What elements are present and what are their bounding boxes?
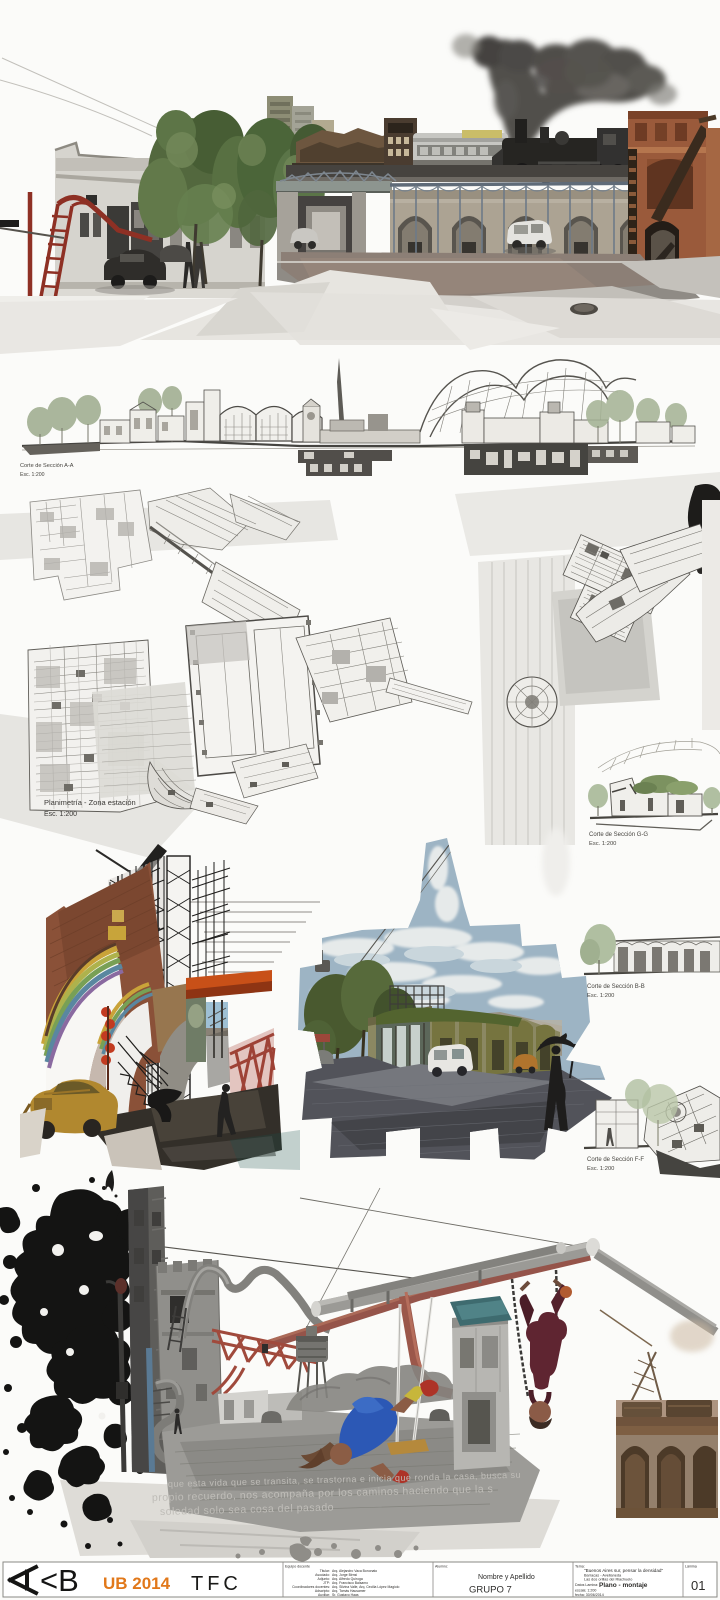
svg-text:Planimetría - Zona estación: Planimetría - Zona estación: [44, 798, 136, 807]
svg-text:Datos Lamina:: Datos Lamina:: [575, 1583, 598, 1587]
svg-text:Lámina: Lámina: [685, 1565, 697, 1569]
svg-text:Sr. Gustavo Haas: Sr. Gustavo Haas: [332, 1593, 359, 1597]
svg-text:Esc. 1:200: Esc. 1:200: [587, 993, 614, 999]
svg-text:Nombre y Apellido: Nombre y Apellido: [478, 1574, 535, 1581]
svg-text:Corte de Sección F-F: Corte de Sección F-F: [587, 1157, 644, 1163]
svg-text:Esc. 1:200: Esc. 1:200: [587, 1166, 614, 1172]
svg-text:Las dos orillas del Riachuelo: Las dos orillas del Riachuelo: [584, 1578, 632, 1582]
svg-text:Esc. 1:200: Esc. 1:200: [589, 841, 616, 847]
svg-text:01: 01: [691, 1578, 705, 1593]
svg-text:Alumno:: Alumno:: [435, 1565, 448, 1569]
svg-text:Corte de Sección G-G: Corte de Sección G-G: [589, 832, 648, 838]
svg-text:Auxiliar:: Auxiliar:: [318, 1593, 330, 1597]
svg-text:escala: 1:200: escala: 1:200: [575, 1589, 596, 1593]
svg-text:Esc. 1:200: Esc. 1:200: [44, 811, 77, 818]
svg-text:Esc. 1:200: Esc. 1:200: [20, 472, 45, 478]
svg-text:Plano - montaje: Plano - montaje: [599, 1582, 648, 1589]
svg-text:Corte de Sección A-A: Corte de Sección A-A: [20, 463, 74, 469]
svg-text:Corte de Sección B-B: Corte de Sección B-B: [587, 984, 645, 990]
svg-text:fecha: 30/06/2014: fecha: 30/06/2014: [575, 1593, 604, 1597]
svg-text:Equipo docente: Equipo docente: [285, 1565, 310, 1569]
svg-text:"Buenos Aires sur, pensar la d: "Buenos Aires sur, pensar la densidad": [584, 1568, 663, 1573]
svg-text:TFC: TFC: [191, 1573, 242, 1595]
svg-text:UB 2014: UB 2014: [103, 1574, 171, 1593]
svg-text:<B: <B: [40, 1563, 79, 1598]
svg-text:GRUPO 7: GRUPO 7: [469, 1585, 512, 1596]
